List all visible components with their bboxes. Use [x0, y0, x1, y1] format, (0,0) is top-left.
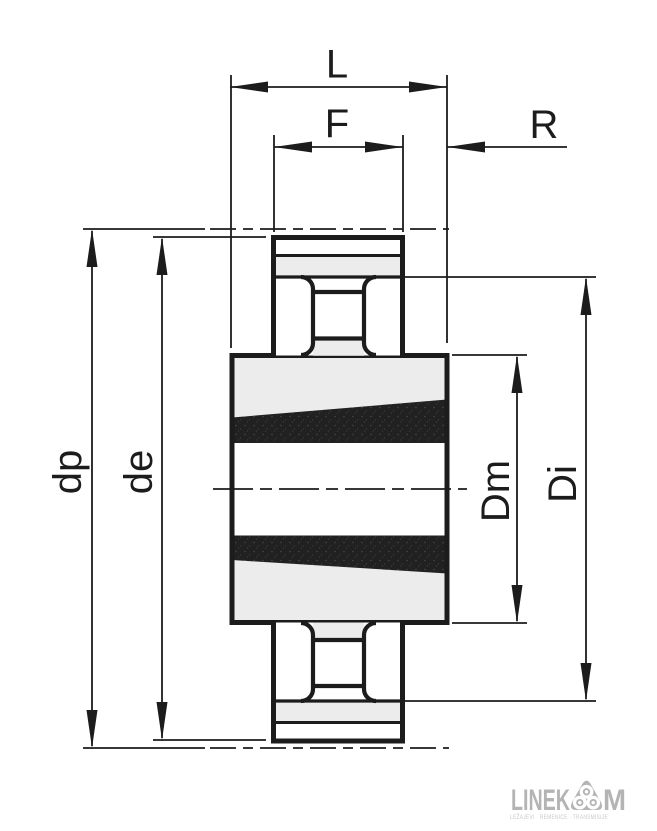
arrowhead-down [581, 663, 592, 701]
bottom-rim-band [276, 701, 400, 723]
arrowhead-down [157, 702, 168, 740]
arrowhead-down [87, 710, 98, 748]
dimension-F [274, 135, 403, 232]
arrowhead-left [447, 142, 485, 153]
arrowhead-up [512, 355, 523, 393]
bottom-web-fill [313, 623, 364, 641]
arrowhead-right [409, 82, 447, 93]
dim-label-L: L [326, 43, 348, 87]
technical-drawing-page: L F R dp de Dm Di LINEK M LEŽAJEVI · REM… [0, 0, 657, 831]
linekom-emblem-icon [571, 781, 602, 810]
dim-label-de: de [117, 450, 161, 495]
arrowhead-right [365, 142, 403, 153]
arrowhead-down [512, 585, 523, 623]
dim-label-Dm: Dm [474, 460, 518, 522]
dim-label-F: F [325, 102, 349, 146]
arrowhead-left [230, 82, 268, 93]
dim-label-Di: Di [541, 465, 585, 503]
arrowhead-up [87, 229, 98, 267]
arrowhead-up [157, 237, 168, 275]
linekom-logo: LINEK M LEŽAJEVI · REMENICE · TRANSMISIJ… [510, 781, 626, 821]
emblem-circle-left [573, 796, 587, 810]
dim-label-R: R [530, 103, 559, 147]
dim-label-dp: dp [46, 450, 90, 495]
top-rim-structure [274, 238, 403, 356]
arrowhead-up [581, 277, 592, 315]
top-web-fill [313, 338, 364, 356]
pulley-cross-section [213, 238, 467, 742]
pulley-technical-drawing: L F R dp de Dm Di LINEK M LEŽAJEVI · REM… [0, 0, 657, 831]
arrowhead-left [274, 142, 312, 153]
emblem-circle-right [586, 796, 600, 810]
logo-text-left: LINEK [511, 784, 570, 817]
logo-text-right: M [603, 784, 626, 817]
top-rim-band [276, 256, 400, 277]
bottom-rim-structure [274, 623, 403, 742]
logo-tagline: LEŽAJEVI · REMENICE · TRANSMISIJE [510, 813, 608, 821]
